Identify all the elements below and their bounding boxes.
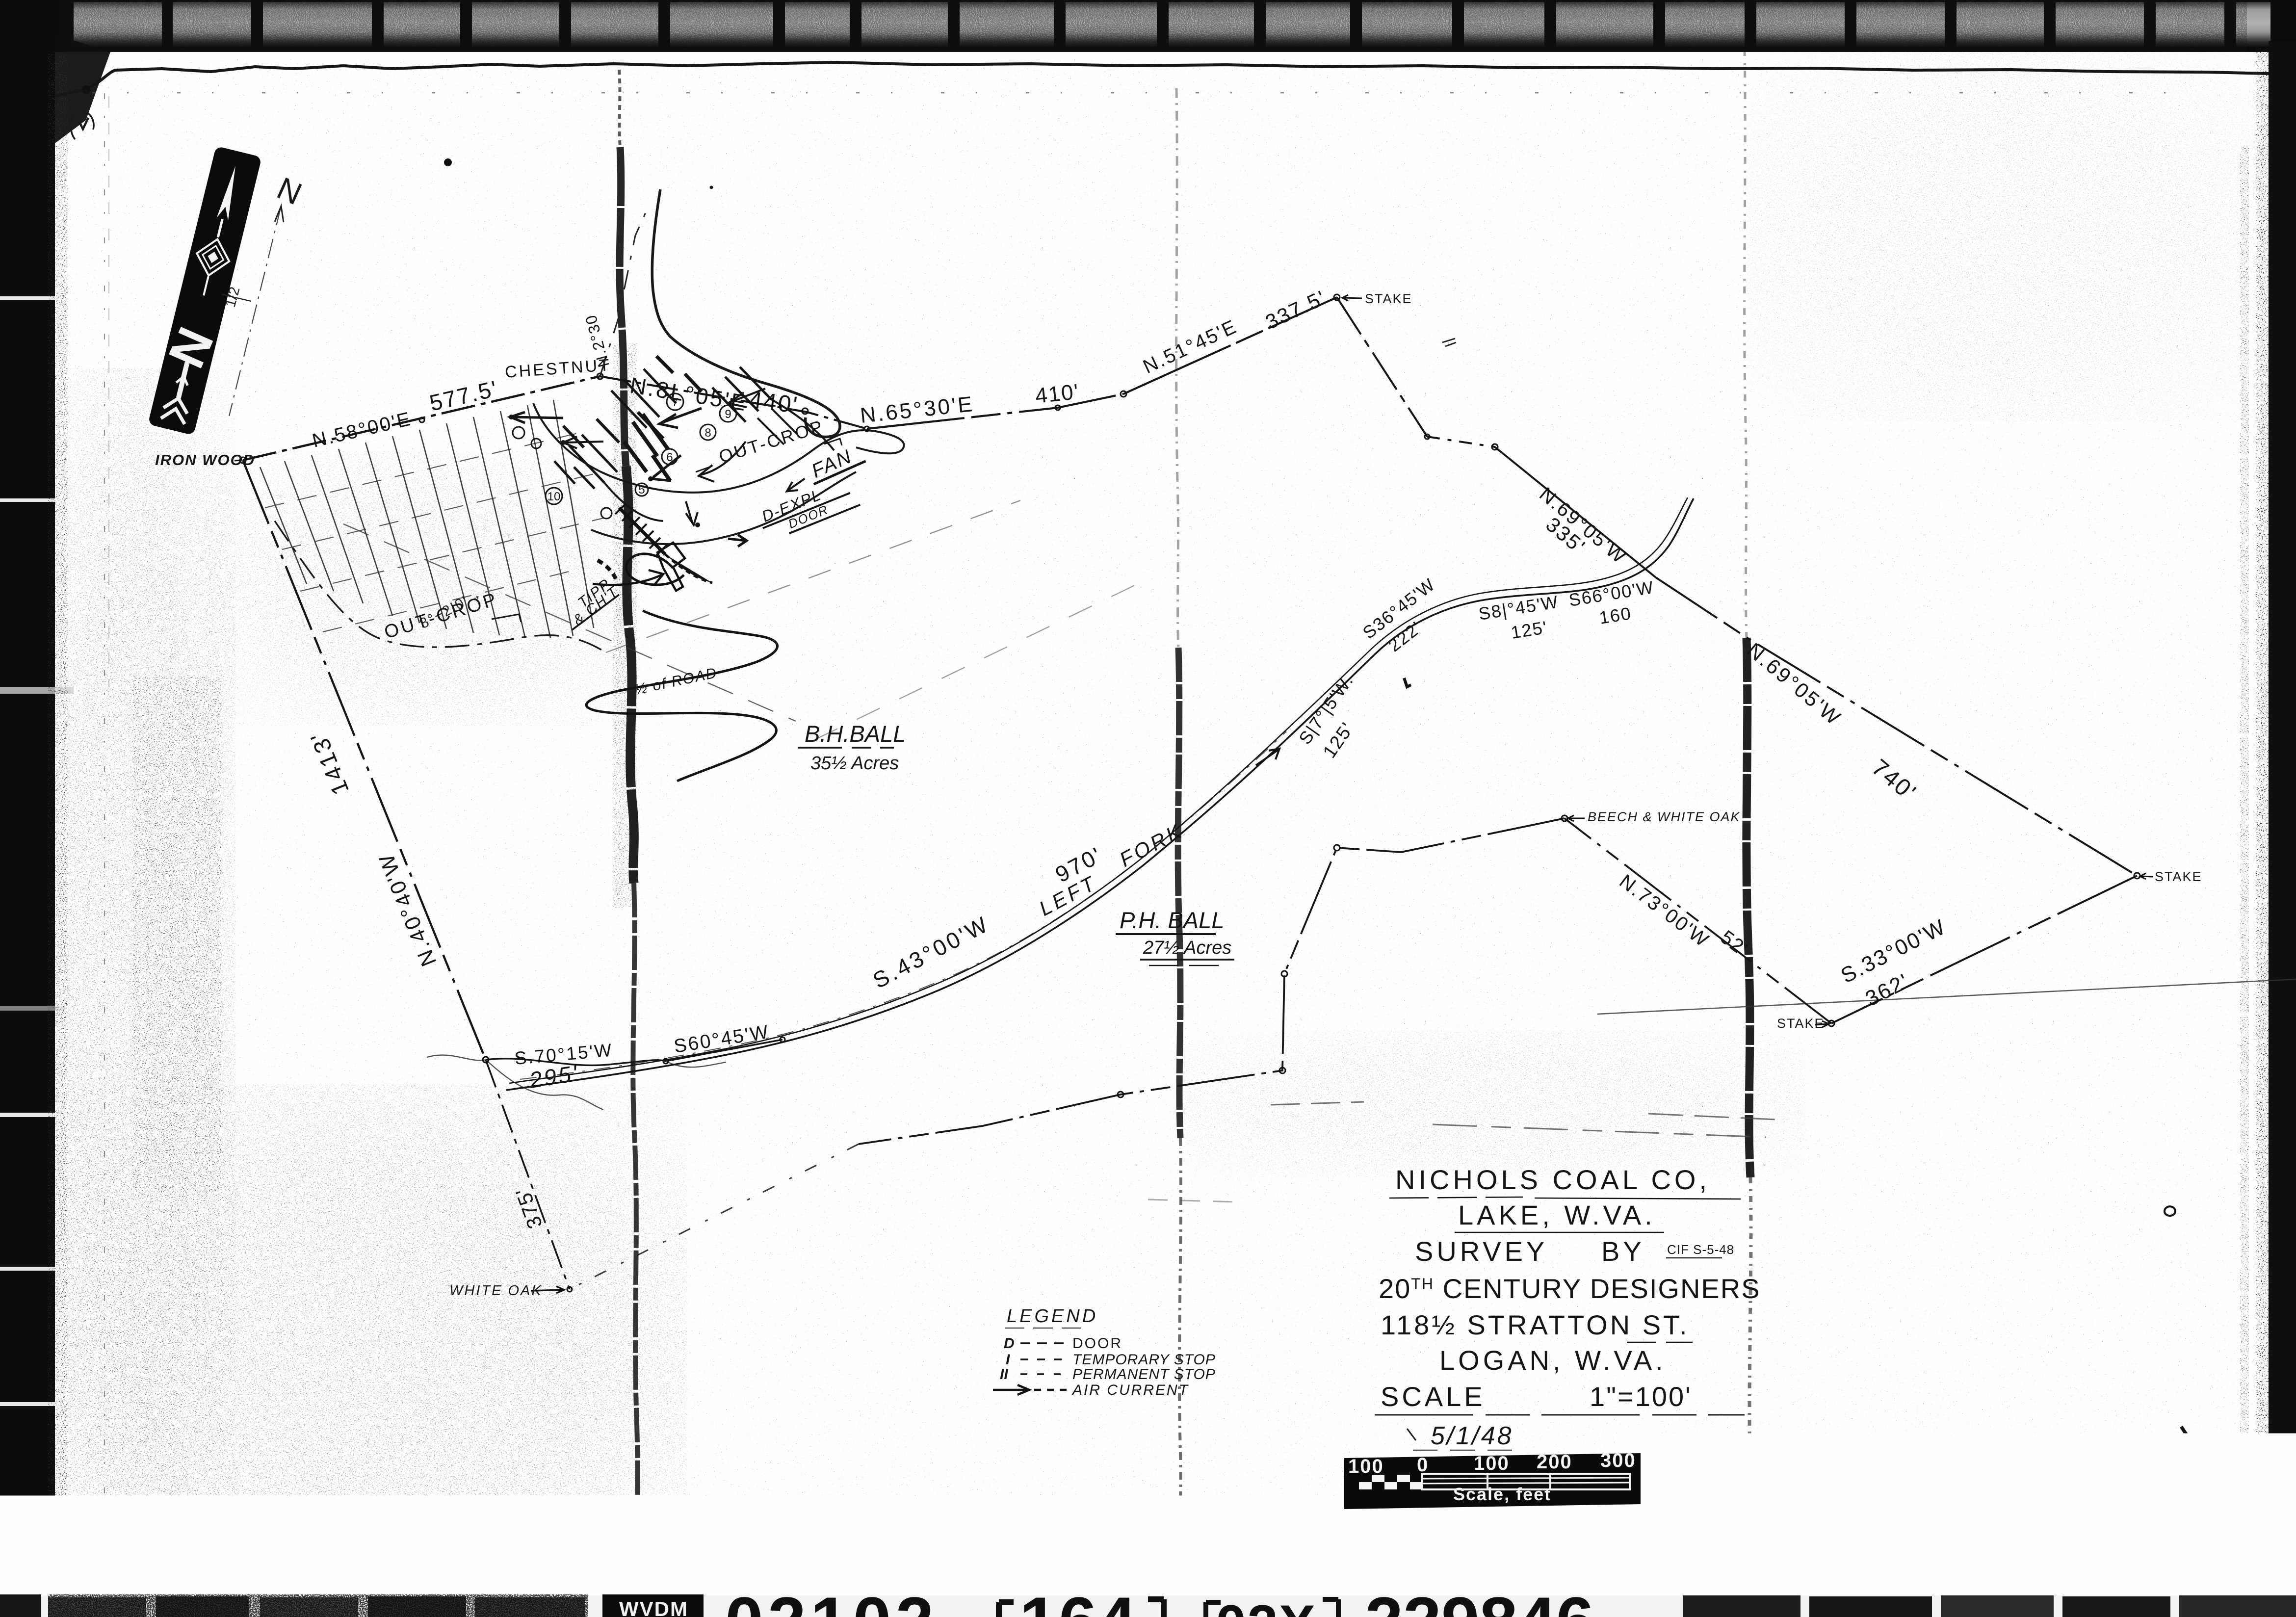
svg-text:II: II [1000,1366,1008,1382]
svg-text:200: 200 [1537,1451,1572,1473]
svg-text:300: 300 [1600,1450,1636,1471]
svg-text:STAKE: STAKE [2155,869,2202,884]
svg-text:DOOR: DOOR [1072,1335,1122,1352]
svg-text:9: 9 [725,408,731,421]
svg-text:BEECH & WHITE OAK: BEECH & WHITE OAK [1588,809,1741,824]
svg-text:AIR CURRENT: AIR CURRENT [1071,1382,1189,1398]
svg-text:0: 0 [1417,1454,1429,1476]
svg-text:SURVEY: SURVEY [1415,1236,1548,1267]
svg-text:7: 7 [672,396,678,409]
svg-text:100: 100 [1474,1453,1510,1474]
svg-text:LOGAN, W.VA.: LOGAN, W.VA. [1439,1345,1667,1376]
svg-text:35½ Acres: 35½ Acres [810,753,899,774]
svg-text:BY: BY [1601,1236,1645,1267]
svg-text:1"=100': 1"=100' [1590,1381,1692,1412]
svg-text:229846: 229846 [1365,1583,1594,1617]
svg-text:TEMPORARY STOP: TEMPORARY STOP [1072,1352,1216,1368]
svg-text:118½ STRATTON ST.: 118½ STRATTON ST. [1381,1309,1690,1340]
svg-text:LEGEND: LEGEND [1007,1306,1098,1327]
svg-text:LAKE, W.VA.: LAKE, W.VA. [1458,1200,1656,1230]
svg-text:27½ Acres: 27½ Acres [1143,938,1231,958]
svg-text:D: D [1004,1335,1015,1352]
svg-text:164: 164 [1019,1583,1137,1617]
svg-text:CIF S-5-48: CIF S-5-48 [1667,1242,1734,1257]
svg-text:5/1/48: 5/1/48 [1431,1422,1513,1450]
svg-text:410': 410' [1034,380,1080,408]
svg-text:STAKE: STAKE [1777,1016,1825,1031]
svg-text:SCALE: SCALE [1381,1381,1486,1412]
svg-text:P.H. BALL: P.H. BALL [1120,907,1224,933]
svg-text:02102: 02102 [725,1583,938,1617]
svg-text:WVDM: WVDM [619,1597,688,1617]
svg-text:Scale, feet: Scale, feet [1453,1484,1551,1504]
svg-text:100: 100 [1348,1456,1384,1477]
svg-text:STAKE: STAKE [1365,291,1412,306]
svg-text:NICHOLS COAL CO,: NICHOLS COAL CO, [1395,1164,1710,1195]
svg-text:5: 5 [638,483,645,496]
svg-text:20TH CENTURY DESIGNERS: 20TH CENTURY DESIGNERS [1379,1273,1761,1304]
svg-text:10: 10 [548,490,561,503]
svg-text:6: 6 [666,451,673,464]
svg-text:B.H.BALL: B.H.BALL [805,721,906,747]
svg-text:I: I [1006,1352,1010,1368]
svg-text:02X: 02X [1216,1594,1316,1617]
svg-text:8: 8 [704,426,711,440]
svg-text:PERMANENT STOP: PERMANENT STOP [1072,1366,1216,1382]
svg-text:WHITE OAK: WHITE OAK [449,1283,543,1299]
